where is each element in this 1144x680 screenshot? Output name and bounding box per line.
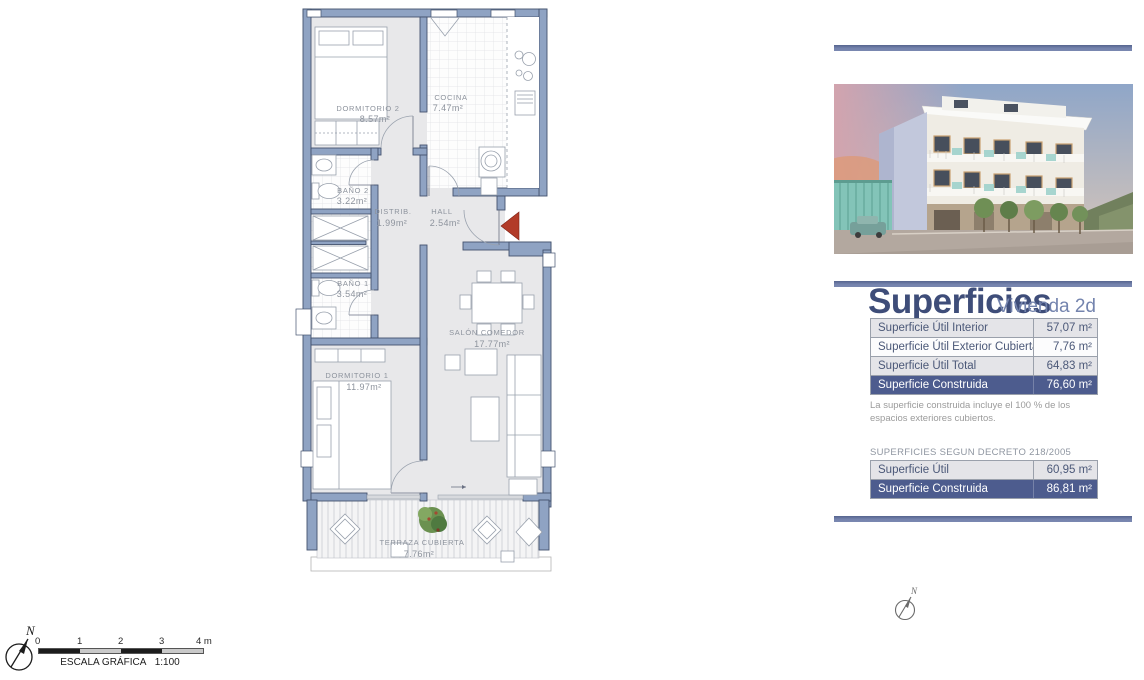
surface-value: 57,07 m²	[1033, 319, 1097, 337]
room-area-dormitorio-1: 11.97m²	[346, 382, 381, 392]
scale-ratio: 1:100	[155, 657, 180, 668]
surface-label: Superficie Útil	[871, 461, 1033, 479]
building-render-image	[834, 84, 1133, 254]
table-row: Superficie Útil 60,95 m²	[871, 461, 1097, 479]
surface-label: Superficie Útil Interior	[871, 319, 1033, 337]
room-label-bano-2: BAÑO 2	[337, 186, 369, 195]
room-area-bano-1: 3.54m²	[337, 289, 367, 299]
room-area-salon: 17.77m²	[474, 339, 510, 349]
table-row: Superficie Construida 86,81 m²	[871, 479, 1097, 498]
scale-caption: ESCALA GRÁFICA 1:100	[34, 657, 206, 668]
scale-caption-text: ESCALA GRÁFICA	[60, 657, 146, 668]
tick-label: 1	[77, 636, 82, 647]
accent-bar-bottom	[834, 516, 1132, 522]
north-label: N	[910, 586, 918, 596]
room-label-dormitorio-2: DORMITORIO 2	[336, 104, 399, 113]
room-area-dormitorio-2: 8.57m²	[360, 114, 390, 124]
construction-note: La superficie construida incluye el 100 …	[870, 399, 1110, 426]
surface-value: 60,95 m²	[1033, 461, 1097, 479]
table-row: Superficie Útil Exterior Cubierta 7,76 m…	[871, 337, 1097, 356]
surface-label: Superficie Útil Exterior Cubierta	[871, 338, 1033, 356]
tick-label: 0	[35, 636, 40, 647]
room-label-dormitorio-1: DORMITORIO 1	[325, 371, 388, 380]
room-label-bano-1: BAÑO 1	[337, 279, 369, 288]
table-row: Superficie Útil Interior 57,07 m²	[871, 319, 1097, 337]
table-row: Superficie Útil Total 64,83 m²	[871, 356, 1097, 375]
surface-value: 76,60 m²	[1033, 376, 1097, 394]
tick-label: 3	[159, 636, 164, 647]
scale-segment	[162, 649, 203, 653]
room-label-hall: HALL	[431, 207, 453, 216]
room-label-terraza: TERRAZA CUBIERTA	[379, 538, 464, 547]
surface-label: Superficie Construida	[871, 480, 1033, 498]
scale-tick-labels: 0 1 2 3 4 m	[34, 636, 219, 647]
room-area-distrib: 1.99m²	[377, 218, 407, 228]
room-label-salon: SALÓN COMEDOR	[449, 328, 525, 337]
room-area-hall: 2.54m²	[430, 218, 460, 228]
scale-bar-strip	[38, 648, 204, 654]
room-area-terraza: 7.76m²	[404, 549, 434, 559]
surface-table-decree: Superficie Útil 60,95 m² Superficie Cons…	[870, 460, 1098, 499]
surface-value: 64,83 m²	[1033, 357, 1097, 375]
surface-value: 7,76 m²	[1033, 338, 1097, 356]
room-label-distrib: DISTRIB.	[374, 207, 411, 216]
room-area-bano-2: 3.22m²	[337, 196, 367, 206]
room-label-cocina: COCINA	[434, 93, 467, 102]
north-compass-icon: N	[890, 584, 924, 624]
surface-value: 86,81 m²	[1033, 480, 1097, 498]
table-row: Superficie Construida 76,60 m²	[871, 375, 1097, 394]
surface-label: Superficie Construida	[871, 376, 1033, 394]
scale-segment	[80, 649, 121, 653]
tick-label: 2	[118, 636, 123, 647]
unit-name: Vivienda 2d	[997, 296, 1096, 318]
accent-bar-top	[834, 45, 1132, 51]
tick-label: 4 m	[196, 636, 212, 647]
surface-table-main: Superficie Útil Interior 57,07 m² Superf…	[870, 318, 1098, 395]
scale-segment	[121, 649, 162, 653]
floor-plan: DORMITORIO 2 8.57m² COCINA 7.47m² BAÑO 2…	[295, 5, 561, 575]
surface-label: Superficie Útil Total	[871, 357, 1033, 375]
room-area-cocina: 7.47m²	[433, 103, 463, 113]
scale-segment	[39, 649, 80, 653]
decree-heading: SUPERFICIES SEGUN DECRETO 218/2005	[870, 447, 1071, 458]
scale-bar: 0 1 2 3 4 m ESCALA GRÁFICA 1:100	[34, 636, 219, 670]
brochure-page: { "floorplan": { "rooms": [ {"name": "DO…	[0, 0, 1144, 680]
